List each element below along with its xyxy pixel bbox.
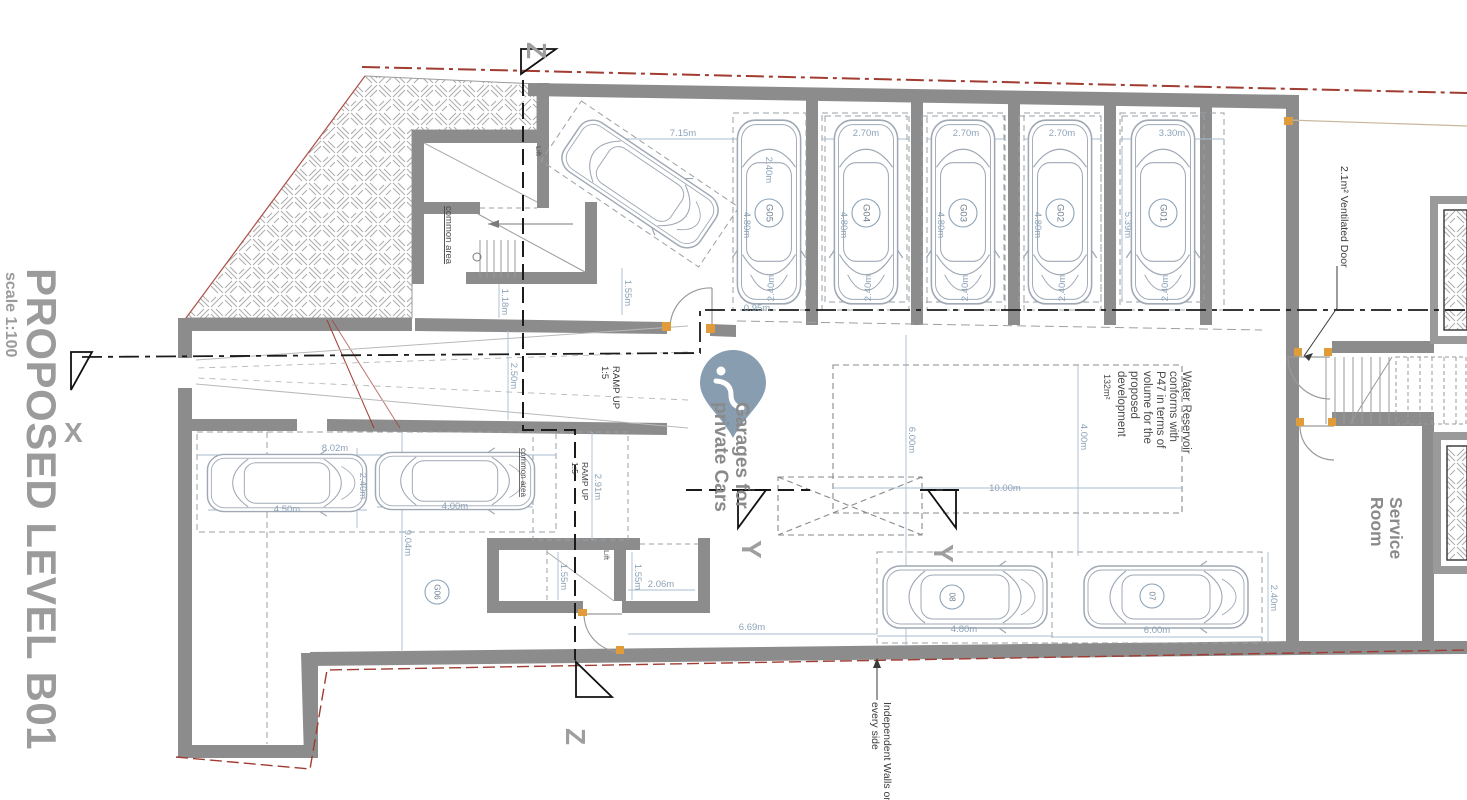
garage-number-label: G02 [1055,204,1066,222]
door-jamb [1296,418,1304,426]
car-icon [883,561,1047,633]
dimension-label: 2.40m [1268,585,1279,611]
stairs-common-area [473,214,585,278]
garages-private-cars: Garages forprivate Cars [710,402,752,512]
section-letter-z: Z [521,42,552,59]
section-letter-y: Y [928,544,959,563]
common-area-upper: common area [443,206,454,265]
dimension-label: 3.30m [1159,128,1185,139]
door-jamb [1324,348,1332,356]
dimension-label: 0.95m [744,303,770,314]
garage-number-label: 07 [1148,591,1157,601]
section-letter-z: Z [560,728,591,745]
dimension-label: 4.80m [951,624,977,635]
section-flag-y-right [928,490,956,528]
independent-walls-note: Independent Walls onevery side [869,702,893,800]
garage-number-label: G01 [1158,204,1169,222]
section-letter-y: Y [736,540,767,559]
garage-number-label: G05 [764,204,775,222]
dimension-label: 2.70m [853,128,879,139]
ramp-up-label-2: RAMP UP1:5 [570,462,590,501]
door-jamb [1328,418,1336,426]
section-letter-x: X [64,417,83,448]
dimension-label: 9.04m [402,530,413,556]
dimension-label: 2.40m [863,275,874,301]
terrace-edge-line [1288,120,1467,126]
water-reservoir-note: Water Reservoirconforms withP47 in terms… [1115,371,1192,454]
dimension-label: 6.00m [906,427,917,453]
dimension-label: 4.50m [274,504,300,515]
ventilated-door-note: 2.1m² Ventilated Door [1338,166,1350,268]
car-icon [1084,561,1248,633]
door-jamb [1294,348,1302,356]
floor-plan-drawing: PROPOSED LEVEL B01 scale 1:100 LiftLiftc… [0,0,1467,800]
garage-number-label: G03 [958,204,969,222]
garage-number-label: G06 [433,584,442,600]
dimension-label: 4.80m [1032,212,1043,238]
car-icon [553,110,727,258]
dimension-label: 2.40m [763,157,774,183]
dimension-label: 4.00m [1078,424,1089,450]
dimension-label: 1.55m [632,564,643,590]
dimension-label: 5.39m [1122,212,1133,238]
dimension-label: 7.15m [670,128,696,139]
dimension-label: 1.18m [499,289,510,315]
door-jamb [1284,117,1293,125]
water-reservoir-area: 132m² [1102,374,1112,400]
dimension-label: 2.70m [1049,128,1075,139]
ramp-up-label-1: RAMP UP1:5 [599,366,621,409]
dimension-label: 2.40m [1160,275,1171,301]
service-room-door [1300,426,1334,460]
dimension-label: 2.40m [1057,275,1068,301]
lift-label-lower: Lift [602,550,611,561]
dimension-label: 1.55m [622,280,633,306]
garage-number-label: G04 [861,204,872,223]
garage-number-label: 08 [948,592,957,602]
dimension-label: 4.80m [741,212,752,238]
section-flag-x [71,352,92,390]
door-jamb [662,322,671,331]
door-jamb [578,609,587,616]
ventilation-shaft-top [1430,196,1467,344]
door-jamb [706,324,715,333]
door-jamb [616,646,624,654]
dimension-label: 8.02m [322,443,348,454]
common-area-lower: common area [519,448,528,497]
dimension-label: 10.00m [989,483,1021,494]
dimension-label: 4.80m [935,212,946,238]
dimension-label: 2.91m [592,474,603,500]
dimension-label: 6.69m [739,622,765,633]
section-flag-z-bottom [576,662,612,697]
dimension-label: 2.50m [508,363,519,389]
dimension-label: 2.40m [357,473,368,499]
service-room-label: ServiceRoom [1367,497,1406,560]
dimension-label: 4.80m [838,212,849,238]
floor-plan-page: PROPOSED LEVEL B01 scale 1:100 LiftLiftc… [0,0,1467,800]
drawing-scale: scale 1:100 [2,272,19,358]
lift-label-upper: Lift [534,146,543,157]
leader-lines [873,266,1337,700]
dimension-label: 2.40m [960,275,971,301]
dimension-label: 1.55m [558,564,569,590]
dimension-label: 2.06m [648,579,674,590]
ventilation-shaft-bottom [1433,432,1467,574]
dimension-label: 2.40m [766,275,777,301]
dimension-label: 6.00m [1144,625,1170,636]
page-title: PROPOSED LEVEL B01 [18,268,65,750]
dimension-label: 2.70m [953,128,979,139]
dimension-label: 4.00m [442,501,468,512]
